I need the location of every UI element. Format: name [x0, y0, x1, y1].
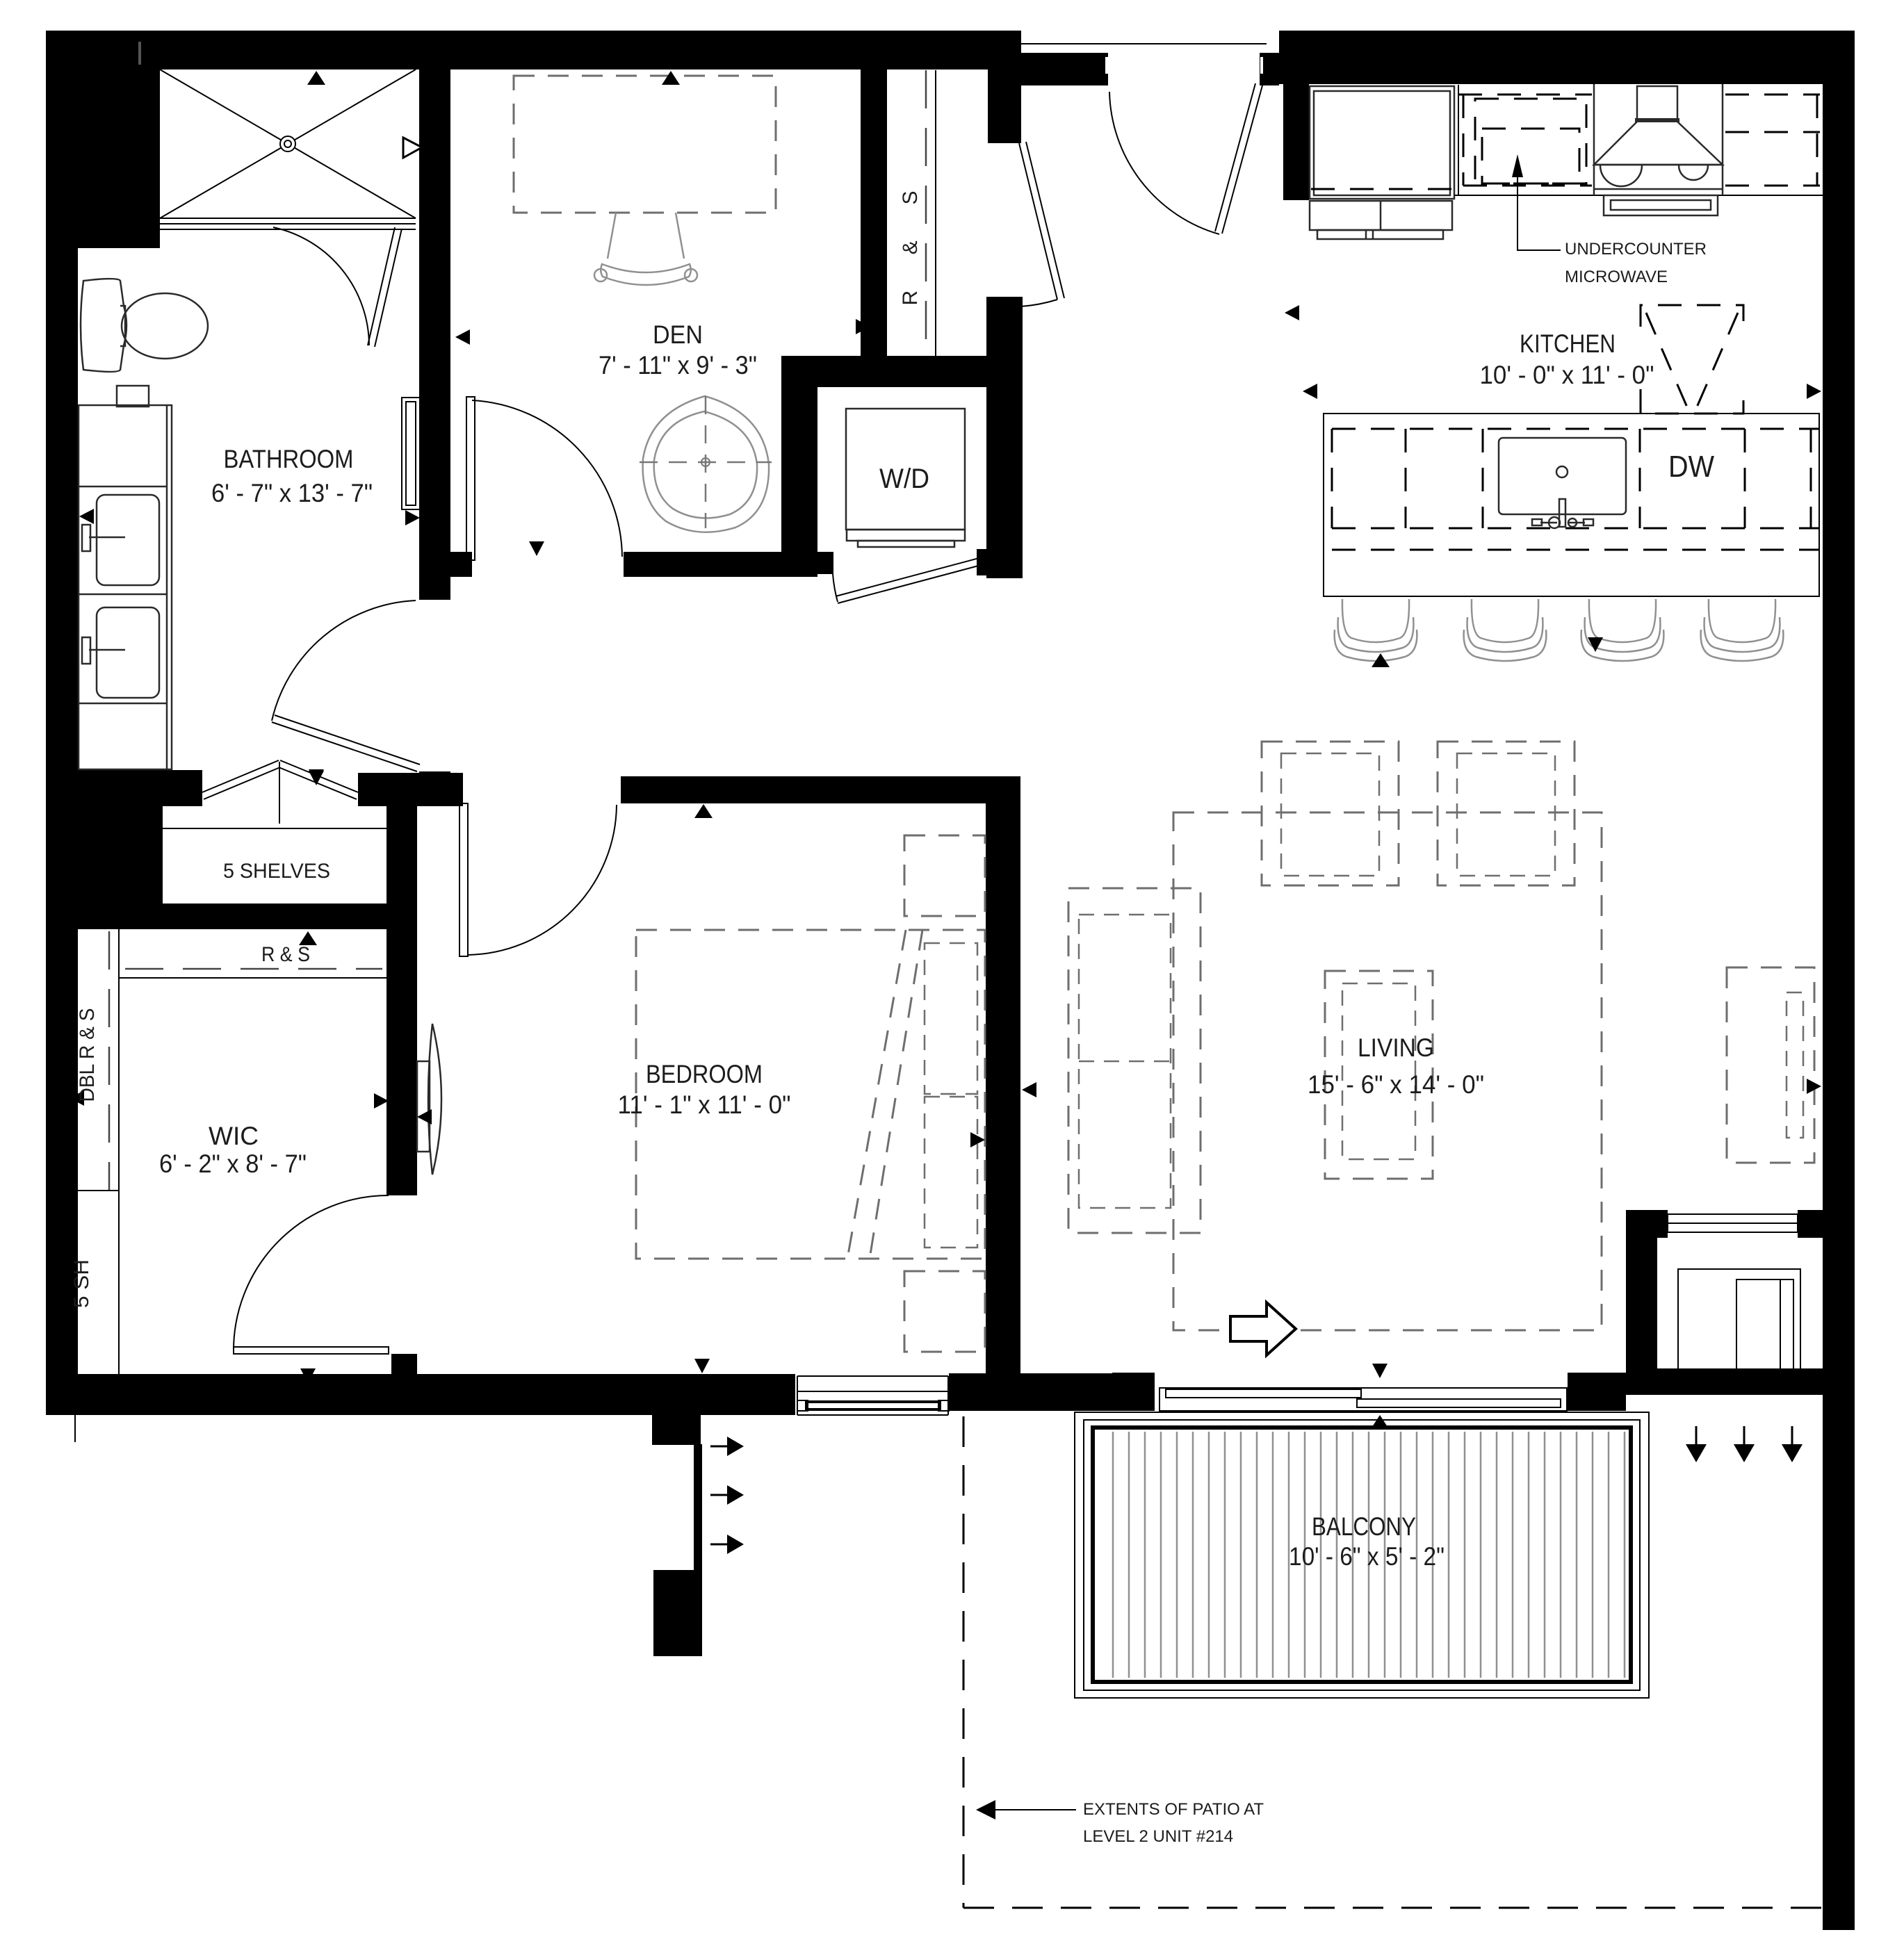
svg-text:R & S: R & S	[261, 943, 310, 966]
svg-text:LIVING: LIVING	[1358, 1033, 1434, 1062]
svg-text:W/D: W/D	[879, 464, 929, 494]
svg-text:WIC: WIC	[209, 1122, 259, 1150]
svg-text:MICROWAVE: MICROWAVE	[1565, 268, 1668, 286]
svg-text:BATHROOM: BATHROOM	[224, 445, 354, 473]
svg-text:6' - 2" x 8' - 7": 6' - 2" x 8' - 7"	[159, 1150, 307, 1178]
svg-text:15' - 6" x 14' - 0": 15' - 6" x 14' - 0"	[1308, 1070, 1484, 1099]
svg-text:6' - 7" x 13' - 7": 6' - 7" x 13' - 7"	[211, 479, 373, 507]
svg-text:5 SH: 5 SH	[70, 1259, 93, 1308]
svg-text:7' - 11" x 9' - 3": 7' - 11" x 9' - 3"	[599, 351, 757, 379]
svg-text:BEDROOM: BEDROOM	[646, 1060, 763, 1088]
svg-text:DEN: DEN	[653, 320, 703, 349]
svg-text:EXTENTS OF PATIO AT: EXTENTS OF PATIO AT	[1083, 1800, 1264, 1819]
svg-text:DBL R & S: DBL R & S	[76, 1008, 99, 1102]
svg-text:10' - 0" x 11' - 0": 10' - 0" x 11' - 0"	[1480, 361, 1654, 389]
svg-text:KITCHEN: KITCHEN	[1520, 329, 1616, 358]
svg-text:UNDERCOUNTER: UNDERCOUNTER	[1565, 240, 1707, 259]
svg-text:LEVEL 2 UNIT #214: LEVEL 2 UNIT #214	[1083, 1827, 1233, 1846]
svg-text:10' - 6" x 5' - 2": 10' - 6" x 5' - 2"	[1289, 1542, 1445, 1571]
svg-text:BALCONY: BALCONY	[1312, 1512, 1416, 1541]
svg-text:11' - 1" x 11' - 0": 11' - 1" x 11' - 0"	[618, 1090, 791, 1119]
svg-text:5 SHELVES: 5 SHELVES	[223, 860, 330, 883]
svg-text:DW: DW	[1668, 450, 1714, 484]
